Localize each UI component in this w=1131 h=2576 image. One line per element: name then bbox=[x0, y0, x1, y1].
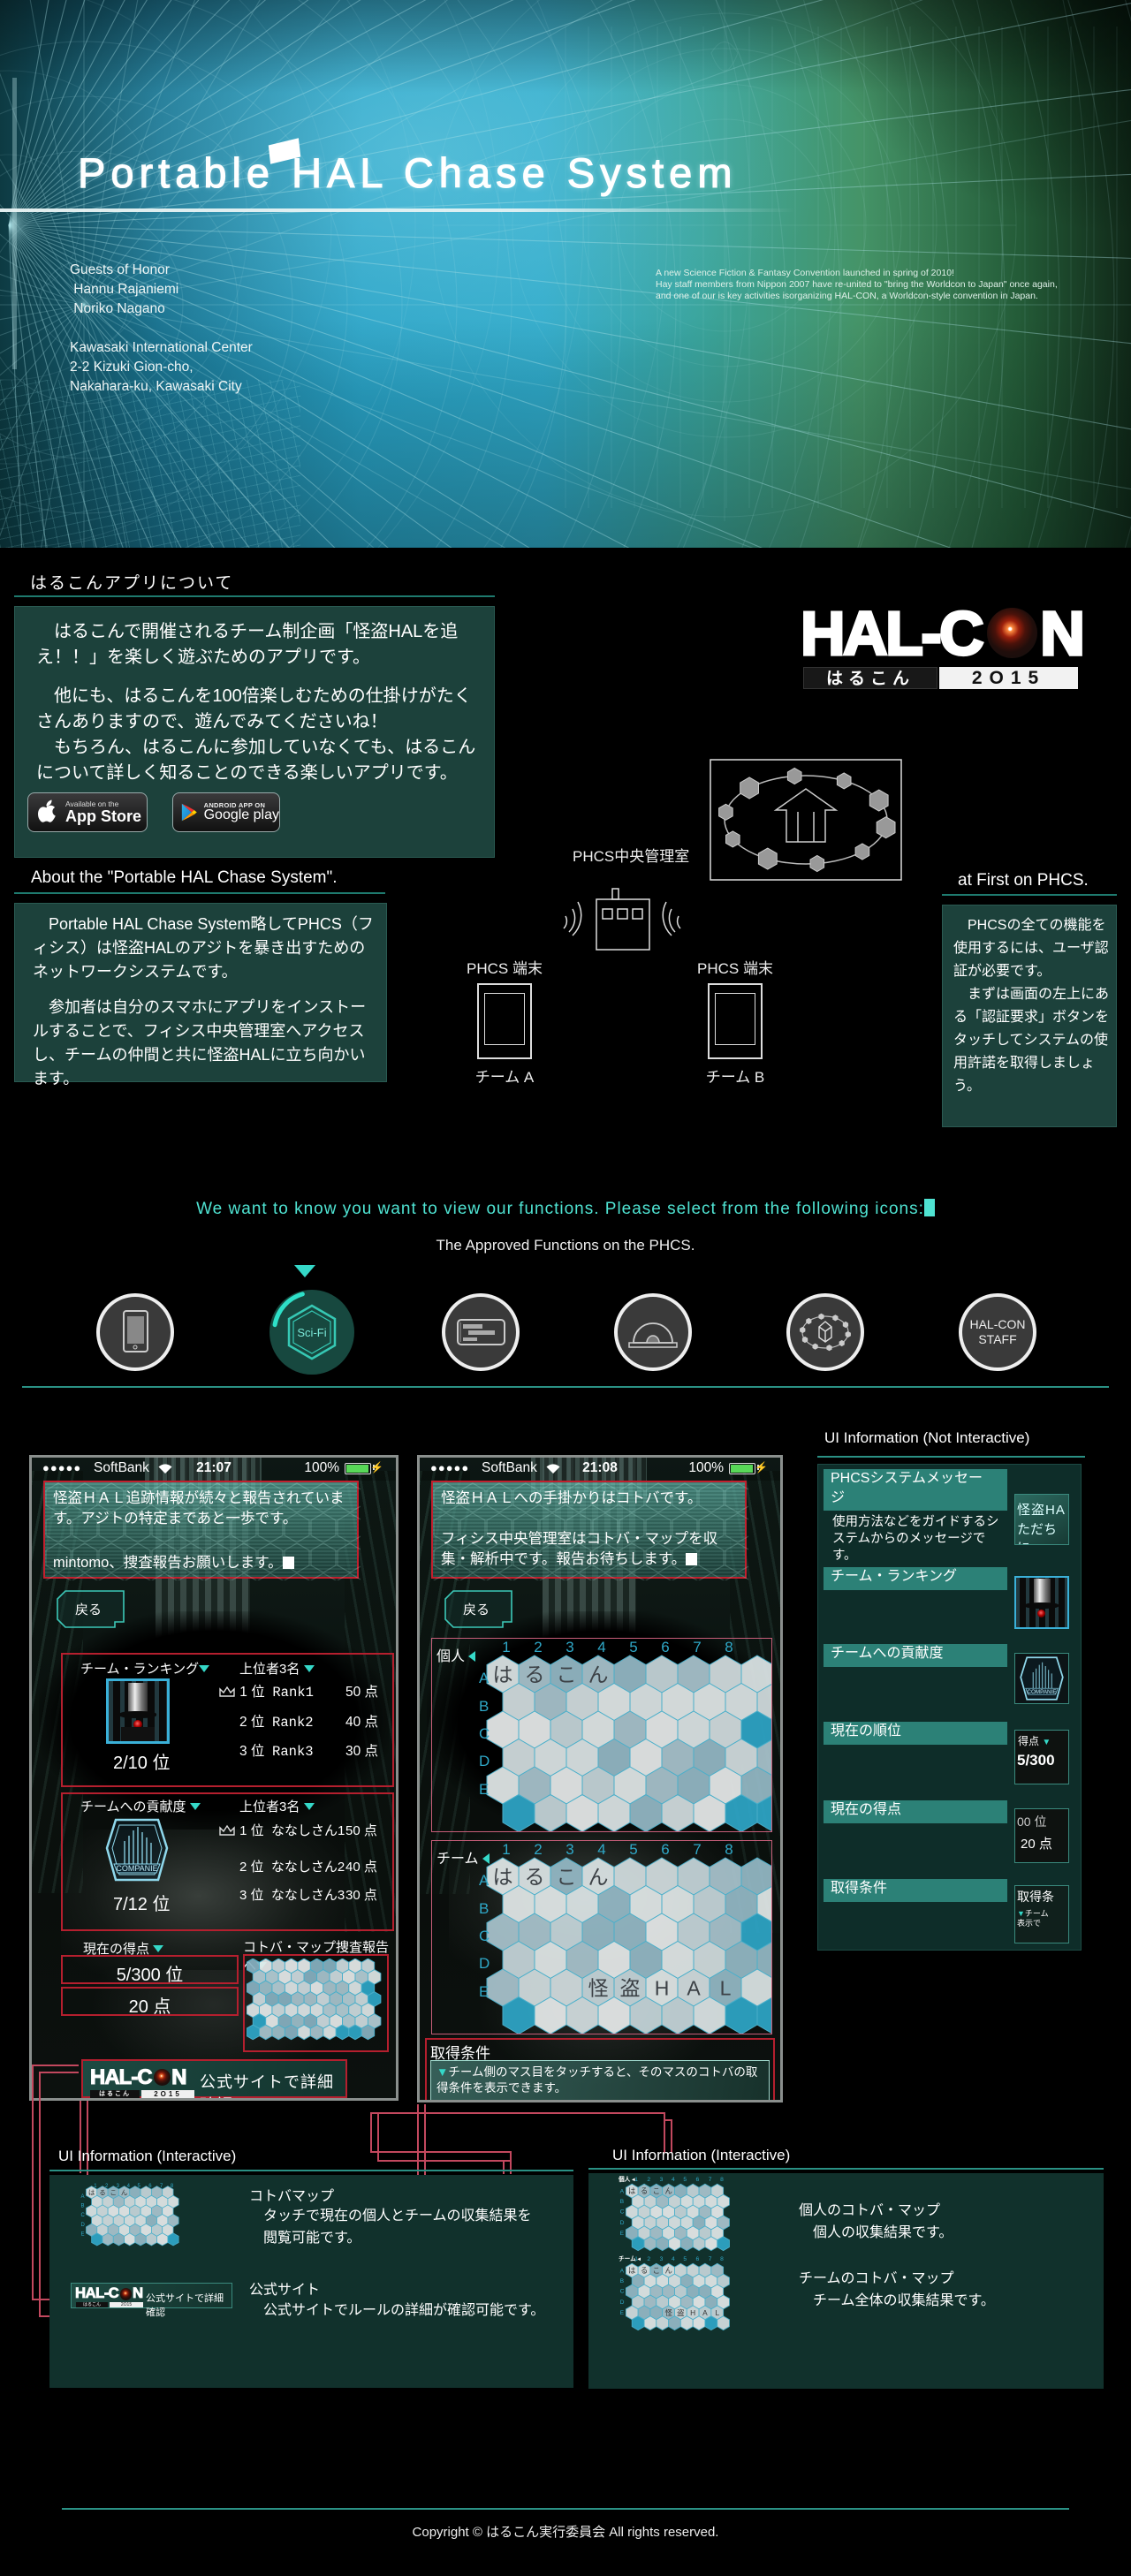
svg-text:COMPANIE: COMPANIE bbox=[116, 1864, 157, 1873]
svg-text:4: 4 bbox=[672, 2256, 675, 2262]
svg-text:は: は bbox=[493, 1663, 513, 1686]
svg-text:1: 1 bbox=[634, 2256, 638, 2262]
svg-text:A: A bbox=[620, 2188, 625, 2194]
svg-text:E: E bbox=[479, 1781, 489, 1798]
svg-text:は: は bbox=[628, 2266, 635, 2275]
svg-text:3: 3 bbox=[117, 2184, 120, 2189]
svg-text:B: B bbox=[620, 2199, 625, 2205]
svg-text:1: 1 bbox=[502, 1640, 510, 1655]
svg-text:A: A bbox=[620, 2268, 625, 2274]
svg-text:こ: こ bbox=[557, 1663, 577, 1686]
svg-text:8: 8 bbox=[725, 1640, 732, 1655]
svg-text:こ: こ bbox=[557, 1865, 577, 1888]
svg-text:こ: こ bbox=[653, 2266, 660, 2275]
svg-text:L: L bbox=[715, 2308, 719, 2317]
svg-text:7: 7 bbox=[693, 1843, 701, 1858]
svg-text:2: 2 bbox=[534, 1843, 542, 1858]
svg-text:る: る bbox=[641, 2186, 648, 2195]
svg-text:E: E bbox=[80, 2232, 84, 2238]
svg-text:ん: ん bbox=[664, 2266, 672, 2275]
svg-text:8: 8 bbox=[171, 2184, 174, 2189]
svg-text:2: 2 bbox=[647, 2256, 650, 2262]
svg-text:A: A bbox=[479, 1670, 490, 1686]
svg-text:1: 1 bbox=[634, 2177, 638, 2183]
svg-text:は: は bbox=[493, 1865, 513, 1888]
svg-text:ん: ん bbox=[588, 1865, 609, 1888]
svg-text:戻る: 戻る bbox=[75, 1602, 102, 1618]
svg-text:H: H bbox=[690, 2308, 695, 2317]
svg-text:B: B bbox=[80, 2204, 84, 2209]
svg-text:6: 6 bbox=[696, 2177, 700, 2183]
svg-text:6: 6 bbox=[148, 2184, 152, 2189]
svg-text:D: D bbox=[479, 1753, 490, 1769]
svg-text:3: 3 bbox=[660, 2256, 664, 2262]
svg-text:Sci-Fi: Sci-Fi bbox=[297, 1326, 326, 1339]
svg-text:E: E bbox=[620, 2231, 625, 2237]
svg-text:A: A bbox=[702, 2308, 708, 2317]
svg-text:7: 7 bbox=[709, 2177, 712, 2183]
svg-text:7: 7 bbox=[709, 2256, 712, 2262]
svg-text:3: 3 bbox=[565, 1640, 573, 1655]
svg-text:2: 2 bbox=[534, 1640, 542, 1655]
svg-text:ん: ん bbox=[121, 2188, 128, 2196]
svg-text:る: る bbox=[525, 1663, 545, 1686]
svg-text:こ: こ bbox=[653, 2186, 660, 2195]
svg-text:4: 4 bbox=[127, 2184, 131, 2189]
svg-text:2: 2 bbox=[647, 2177, 650, 2183]
svg-text:こ: こ bbox=[110, 2188, 117, 2196]
svg-text:D: D bbox=[620, 2299, 625, 2306]
svg-text:る: る bbox=[525, 1865, 545, 1888]
svg-text:る: る bbox=[641, 2266, 648, 2275]
svg-text:8: 8 bbox=[720, 2177, 724, 2183]
svg-text:1: 1 bbox=[94, 2184, 97, 2189]
svg-text:5: 5 bbox=[629, 1843, 637, 1858]
svg-text:A: A bbox=[687, 1976, 701, 1999]
svg-text:D: D bbox=[80, 2223, 85, 2228]
svg-text:C: C bbox=[620, 2209, 625, 2216]
svg-text:L: L bbox=[720, 1976, 732, 1999]
svg-text:C: C bbox=[479, 1725, 490, 1742]
svg-text:6: 6 bbox=[661, 1843, 669, 1858]
svg-text:8: 8 bbox=[725, 1843, 732, 1858]
svg-text:A: A bbox=[80, 2194, 84, 2200]
svg-text:1: 1 bbox=[502, 1843, 510, 1858]
svg-text:盗: 盗 bbox=[620, 1976, 641, 1999]
svg-text:2: 2 bbox=[105, 2184, 109, 2189]
svg-text:戻る: 戻る bbox=[463, 1602, 490, 1618]
svg-text:A: A bbox=[479, 1872, 490, 1889]
svg-text:B: B bbox=[620, 2278, 625, 2284]
svg-text:個人 ◂: 個人 ◂ bbox=[619, 2175, 635, 2183]
svg-text:は: は bbox=[88, 2188, 95, 2196]
svg-text:B: B bbox=[479, 1698, 489, 1715]
svg-text:盗: 盗 bbox=[677, 2308, 684, 2317]
svg-text:5: 5 bbox=[629, 1640, 637, 1655]
svg-text:5: 5 bbox=[683, 2177, 687, 2183]
svg-text:3: 3 bbox=[660, 2177, 664, 2183]
svg-text:は: は bbox=[628, 2186, 635, 2195]
svg-text:3: 3 bbox=[565, 1843, 573, 1858]
svg-text:4: 4 bbox=[597, 1640, 605, 1655]
svg-text:5: 5 bbox=[138, 2184, 141, 2189]
svg-text:4: 4 bbox=[597, 1843, 605, 1858]
svg-text:PHCS中央管理室: PHCS中央管理室 bbox=[573, 848, 689, 865]
svg-text:D: D bbox=[620, 2220, 625, 2226]
svg-text:H: H bbox=[655, 1976, 670, 1999]
svg-text:ん: ん bbox=[588, 1663, 609, 1686]
svg-text:D: D bbox=[479, 1955, 490, 1972]
svg-text:B: B bbox=[479, 1900, 489, 1917]
svg-text:怪: 怪 bbox=[664, 2308, 672, 2317]
svg-text:C: C bbox=[620, 2289, 625, 2295]
svg-text:6: 6 bbox=[661, 1640, 669, 1655]
svg-text:E: E bbox=[620, 2310, 625, 2316]
svg-text:8: 8 bbox=[720, 2256, 724, 2262]
svg-text:5: 5 bbox=[683, 2256, 687, 2262]
svg-text:E: E bbox=[479, 1983, 489, 2000]
svg-text:4: 4 bbox=[672, 2177, 675, 2183]
svg-text:7: 7 bbox=[693, 1640, 701, 1655]
svg-text:COMPANIE: COMPANIE bbox=[1027, 1689, 1056, 1695]
svg-text:る: る bbox=[99, 2188, 105, 2196]
svg-text:C: C bbox=[479, 1928, 490, 1944]
svg-text:C: C bbox=[80, 2213, 85, 2218]
svg-text:7: 7 bbox=[160, 2184, 163, 2189]
svg-text:6: 6 bbox=[696, 2256, 700, 2262]
svg-text:ん: ん bbox=[664, 2186, 672, 2195]
svg-text:怪: 怪 bbox=[588, 1976, 609, 1999]
